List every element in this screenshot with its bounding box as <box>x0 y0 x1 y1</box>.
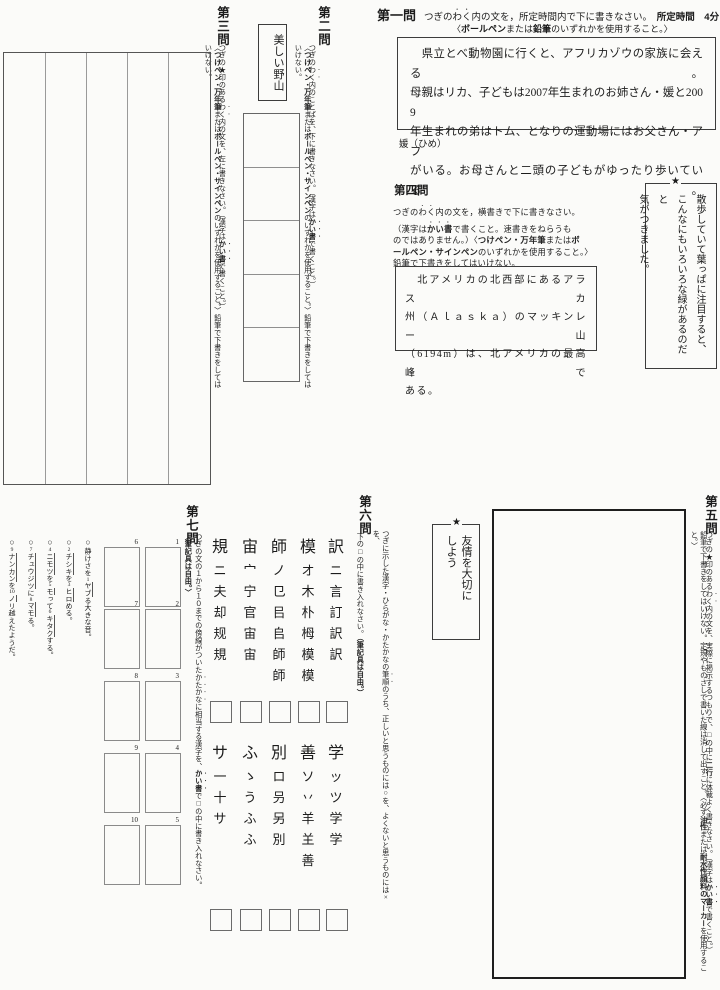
kanji-answer-box: 6 <box>104 547 140 607</box>
stroke-step: ツ <box>329 788 342 809</box>
question6-instruction-2: 下の□の中に書き入れなさい。（筆記具は自由。） <box>355 533 365 708</box>
stroke-char: 学 <box>328 743 344 767</box>
answer-column <box>46 53 87 484</box>
question7-instruction: つぎの文の１から１０までの傍線がついたかたかなに相当する漢字を、かい書で□の中に… <box>183 533 209 893</box>
stroke-step: 学 <box>329 830 342 851</box>
question4-star-text-box: 散歩していて葉っぱに注目すると、 こんなにもいろいろな緑があるのだと 気がつきま… <box>645 183 717 369</box>
box-number: 4 <box>176 744 180 752</box>
answer-cell <box>244 114 299 168</box>
stroke-step: 宁 <box>243 582 256 603</box>
box-number: 1 <box>176 538 180 546</box>
stroke-step: 却 <box>213 603 226 624</box>
box-number: 3 <box>176 672 180 680</box>
stroke-step: 十 <box>213 788 226 809</box>
question2-number: 第二問 <box>314 6 333 47</box>
stroke-step: オ <box>301 561 314 582</box>
question1-copy-text-box: 県立とべ動物園に行くと、アフリカゾウの家族に会える。 母親はリカ、子どもは200… <box>397 37 716 130</box>
stroke-step: 木 <box>301 582 314 603</box>
kanji-answer-box: 5 <box>145 825 181 885</box>
stroke-step: 𠂤 <box>272 624 285 645</box>
stroke-order-column: 規 ニ 夫 却 规 規 <box>208 537 232 666</box>
copy-line: （6194m）は、北アメリカの最高峰で <box>405 346 587 383</box>
copy-line: ある。 <box>405 383 587 402</box>
stroke-step: ッ <box>329 767 342 788</box>
stroke-order-column: サ 一 十 サ <box>208 743 232 830</box>
stroke-step: 一 <box>213 767 226 788</box>
mark-answer-box <box>240 909 262 931</box>
stroke-order-column: 別 ロ 叧 另 別 <box>267 743 291 851</box>
mark-answer-box <box>298 701 320 723</box>
stroke-step: 師 <box>272 666 285 687</box>
star-box-column: こんなにもいろいろな緑があるのだと <box>652 194 690 358</box>
stroke-char: ふ <box>242 743 258 767</box>
stroke-step: 訂 <box>329 603 342 624</box>
stroke-step: 叧 <box>272 788 285 809</box>
sample-word: 美しい野山 <box>272 34 284 92</box>
stroke-step: 宙 <box>243 624 256 645</box>
stroke-step: ふ <box>243 830 256 851</box>
question4-copy-text-box: 北アメリカの北西部にあるアラスカ 州（Ａｌａｓｋａ）のマッキンレー山 （6194… <box>395 266 597 351</box>
copy-line: 県立とべ動物園に行くと、アフリカゾウの家族に会える。 <box>410 45 703 84</box>
stroke-char: 模 <box>300 537 316 561</box>
stroke-step: 訳 <box>329 624 342 645</box>
mark-answer-box <box>210 701 232 723</box>
stroke-order-column: 模 オ 木 朴 栂 模 模 <box>296 537 320 687</box>
star-box-column: 友情を大切に <box>458 535 473 629</box>
box-number: 9 <box>135 744 139 752</box>
question2-answer-grid <box>243 113 300 382</box>
stroke-step: ソ <box>301 767 314 788</box>
box-number: 5 <box>176 816 180 824</box>
stroke-step: ニ <box>213 561 226 582</box>
box-number: 10 <box>131 816 138 824</box>
sentence: ○4ニモツを5モって6キタクする。 <box>40 537 59 672</box>
stroke-char: 訳 <box>328 537 344 561</box>
star-box-column: しよう <box>443 535 458 629</box>
stroke-step: 模 <box>301 666 314 687</box>
stroke-order-column: 訳 ニ 言 訂 訳 訳 <box>324 537 348 666</box>
stroke-step: 訳 <box>329 645 342 666</box>
stroke-step: ノ <box>272 561 285 582</box>
stroke-order-column: 善 ソ 丷 羊 𦍌 善 <box>296 743 320 872</box>
stroke-step: 𦍌 <box>301 830 314 851</box>
stroke-step: 学 <box>329 809 342 830</box>
question4-number: 第四問 <box>394 185 429 197</box>
stroke-step: 朴 <box>301 603 314 624</box>
question3-answer-grid <box>3 52 211 485</box>
kanji-answer-box: 3 <box>145 681 181 741</box>
question1-furigana-note: 媛（ひめ） <box>399 136 447 150</box>
copy-line: 年生まれの弟はトム、となりの運動場にはお父さん・アフ <box>410 123 703 162</box>
star-box-column: 気がつきました。 <box>633 194 652 358</box>
stroke-step: 栂 <box>301 624 314 645</box>
stroke-step: ふ <box>243 809 256 830</box>
stroke-step: 善 <box>301 851 314 872</box>
stroke-order-column: 宙 宀 宁 官 宙 宙 <box>238 537 262 666</box>
sentence: ○7チュウジツに8マモる。 <box>21 537 40 672</box>
mark-answer-box <box>240 701 262 723</box>
star-mark-icon: ★ <box>451 518 462 528</box>
answer-column <box>128 53 169 484</box>
box-number: 6 <box>135 538 139 546</box>
stroke-step: 模 <box>301 645 314 666</box>
question6-instruction: つぎに示した漢字・ひらがな・かたかなの筆順のうち、正しいと思うものには○を、よく… <box>371 530 395 915</box>
copy-line: 母親はリカ、子どもは2007年生まれのお姉さん・媛と2009 <box>410 84 703 123</box>
stroke-step: ロ <box>272 767 285 788</box>
sentence: ○2チシキを3ヒロめる。 <box>59 537 78 672</box>
question5-star-text-box: 友情を大切に しよう ★ <box>432 524 480 640</box>
stroke-step: 丷 <box>301 788 314 809</box>
question1-pen-note: 〈ボールペンまたは鉛筆のいずれかを使用すること。〉 <box>452 22 673 35</box>
stroke-step: 言 <box>329 582 342 603</box>
mark-answer-box <box>298 909 320 931</box>
question4-instruction: つぎのわく内の文を，横書きで下に書きなさい。 （漢字はかい書で書くこと。速書きを… <box>393 203 598 270</box>
sentence: ○静けさを1ヤブる大きな音。 <box>78 537 97 672</box>
mark-answer-box <box>269 909 291 931</box>
stroke-step: 別 <box>272 830 285 851</box>
stroke-order-column: ふ ゝ う ふ ふ <box>238 743 262 851</box>
question4-section: 第四問 <box>394 181 429 199</box>
stroke-step: 羊 <box>301 809 314 830</box>
answer-cell <box>244 168 299 222</box>
star-box-column: 散歩していて葉っぱに注目すると、 <box>690 194 709 358</box>
question3-number: 第三問 <box>213 6 232 47</box>
question5-answer-box <box>492 509 686 979</box>
stroke-step: 规 <box>213 624 226 645</box>
stroke-step: サ <box>213 809 226 830</box>
stroke-order-column: 師 ノ 㔾 㠯 𠂤 師 師 <box>267 537 291 687</box>
mark-answer-box <box>326 909 348 931</box>
exam-sheet: 第一問 つぎのわく内の文を，所定時間内で下に書きなさい。 所定時間 4分 〈ボー… <box>0 0 720 990</box>
box-number: 7 <box>135 600 139 608</box>
mark-answer-box <box>326 701 348 723</box>
kanji-answer-box: 7 <box>104 609 140 669</box>
stroke-step: 宙 <box>243 645 256 666</box>
stroke-step: ニ <box>329 561 342 582</box>
stroke-step: 官 <box>243 603 256 624</box>
mark-answer-box <box>210 909 232 931</box>
answer-column <box>169 53 210 484</box>
stroke-step: 㠯 <box>272 603 285 624</box>
stroke-step: う <box>243 788 256 809</box>
answer-column <box>87 53 128 484</box>
stroke-step: 規 <box>213 645 226 666</box>
answer-column <box>4 53 46 484</box>
mark-answer-box <box>269 701 291 723</box>
stroke-step: 夫 <box>213 582 226 603</box>
question1-instruction: つぎのわく内の文を，所定時間内で下に書きなさい。 所定時間 4分 <box>424 8 719 23</box>
question5-pen-note: 鉛筆で下書きをしてはいけない。定規やものさしで書いた線は消して出すこと。〈必ず油… <box>689 531 709 986</box>
kanji-answer-box: 2 <box>145 609 181 669</box>
question1-number: 第一問 <box>377 8 416 23</box>
stroke-char: 別 <box>271 743 287 767</box>
sentence: ○9ナンカンを10ノリ越えたようだ。 <box>2 537 21 672</box>
stroke-step: ゝ <box>243 767 256 788</box>
stroke-order-column: 学 ッ ツ 学 学 <box>324 743 348 851</box>
kanji-answer-box: 1 <box>145 547 181 607</box>
answer-cell <box>244 328 299 381</box>
kanji-answer-box: 9 <box>104 753 140 813</box>
stroke-char: サ <box>212 743 228 767</box>
stroke-char: 宙 <box>242 537 258 561</box>
question2-sample-word-box: 美しい野山 <box>258 24 287 101</box>
box-number: 2 <box>176 600 180 608</box>
stroke-step: 另 <box>272 809 285 830</box>
copy-line: 州（Ａｌａｓｋａ）のマッキンレー山 <box>405 309 587 346</box>
stroke-step: 師 <box>272 645 285 666</box>
stroke-char: 師 <box>271 537 287 561</box>
question1-section: 第一問 <box>377 5 416 25</box>
stroke-char: 規 <box>212 537 228 561</box>
kanji-answer-box: 10 <box>104 825 140 885</box>
stroke-step: 宀 <box>243 561 256 582</box>
kanji-answer-box: 8 <box>104 681 140 741</box>
copy-line: 北アメリカの北西部にあるアラスカ <box>405 272 587 309</box>
question7-sentences: ○静けさを1ヤブる大きな音。 ○2チシキを3ヒロめる。 ○4ニモツを5モって6キ… <box>1 537 97 677</box>
answer-cell <box>244 275 299 329</box>
kanji-answer-box: 4 <box>145 753 181 813</box>
box-number: 8 <box>135 672 139 680</box>
star-mark-icon: ★ <box>670 177 681 187</box>
question5-number: 第五問 <box>701 495 720 536</box>
stroke-char: 善 <box>300 743 316 767</box>
stroke-step: 㔾 <box>272 582 285 603</box>
answer-cell <box>244 221 299 275</box>
